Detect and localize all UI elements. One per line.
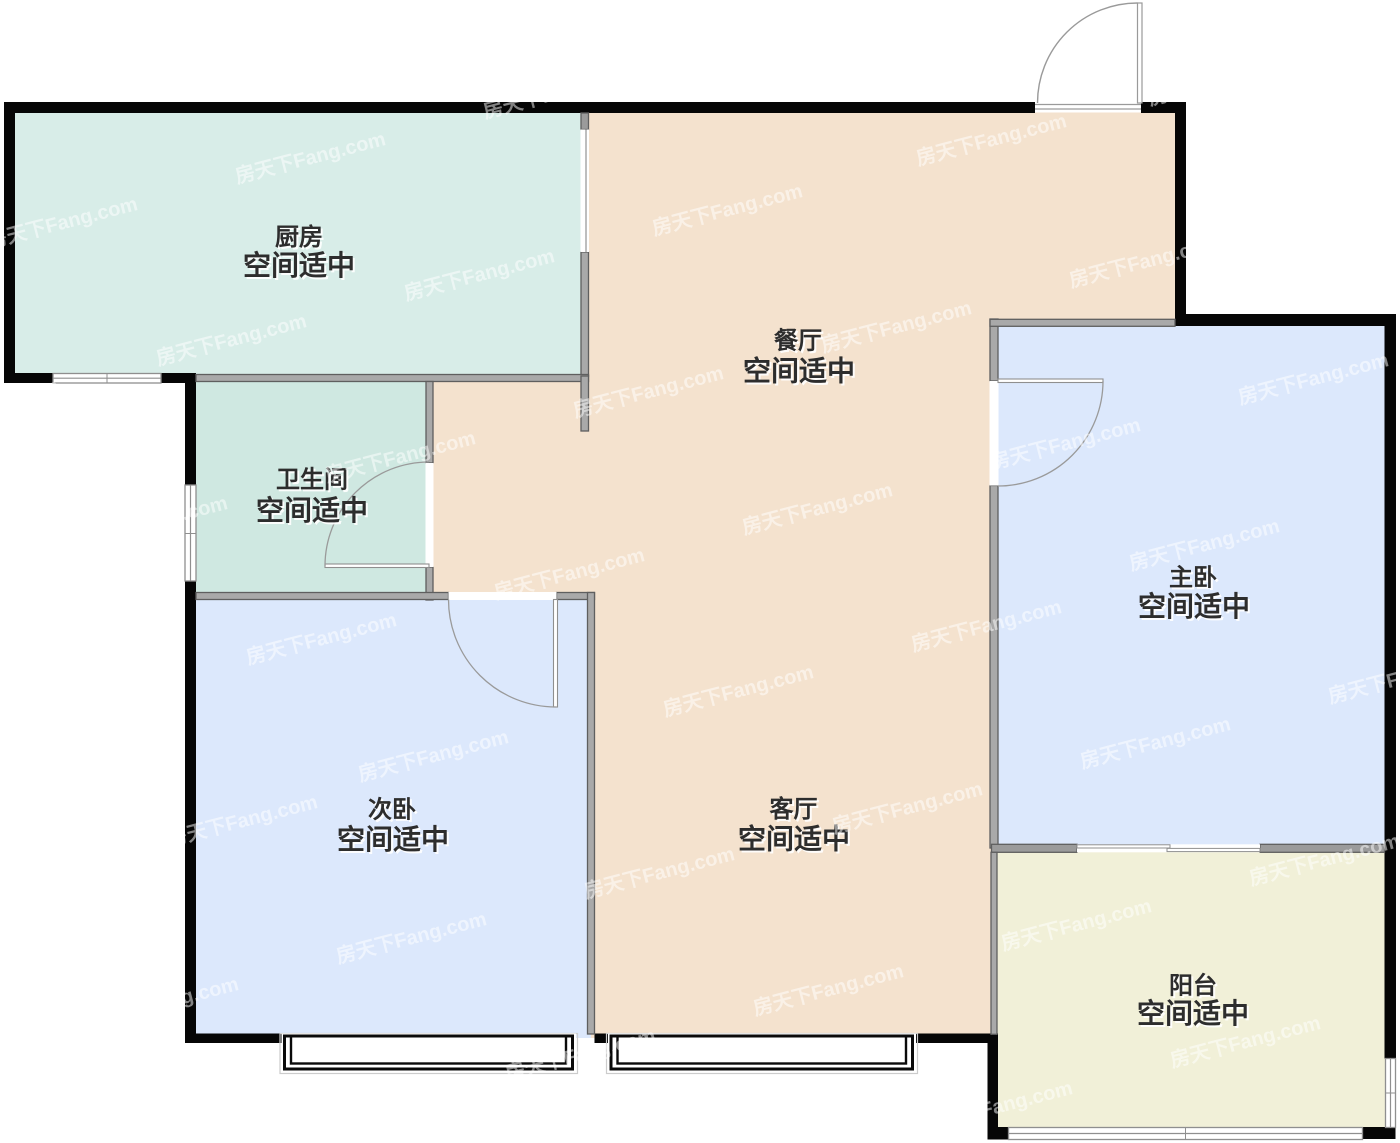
svg-text:空间适中: 空间适中 xyxy=(243,249,355,281)
svg-text:餐厅: 餐厅 xyxy=(774,328,822,355)
svg-text:空间适中: 空间适中 xyxy=(337,823,449,855)
svg-text:阳台: 阳台 xyxy=(1169,972,1217,1000)
svg-text:空间适中: 空间适中 xyxy=(743,355,855,387)
svg-text:次卧: 次卧 xyxy=(368,797,416,824)
svg-text:主卧: 主卧 xyxy=(1169,565,1217,592)
svg-text:客厅: 客厅 xyxy=(770,795,818,823)
svg-text:空间适中: 空间适中 xyxy=(1137,997,1249,1029)
svg-text:空间适中: 空间适中 xyxy=(256,494,368,526)
svg-text:空间适中: 空间适中 xyxy=(1138,590,1250,622)
svg-text:厨房: 厨房 xyxy=(275,223,323,251)
